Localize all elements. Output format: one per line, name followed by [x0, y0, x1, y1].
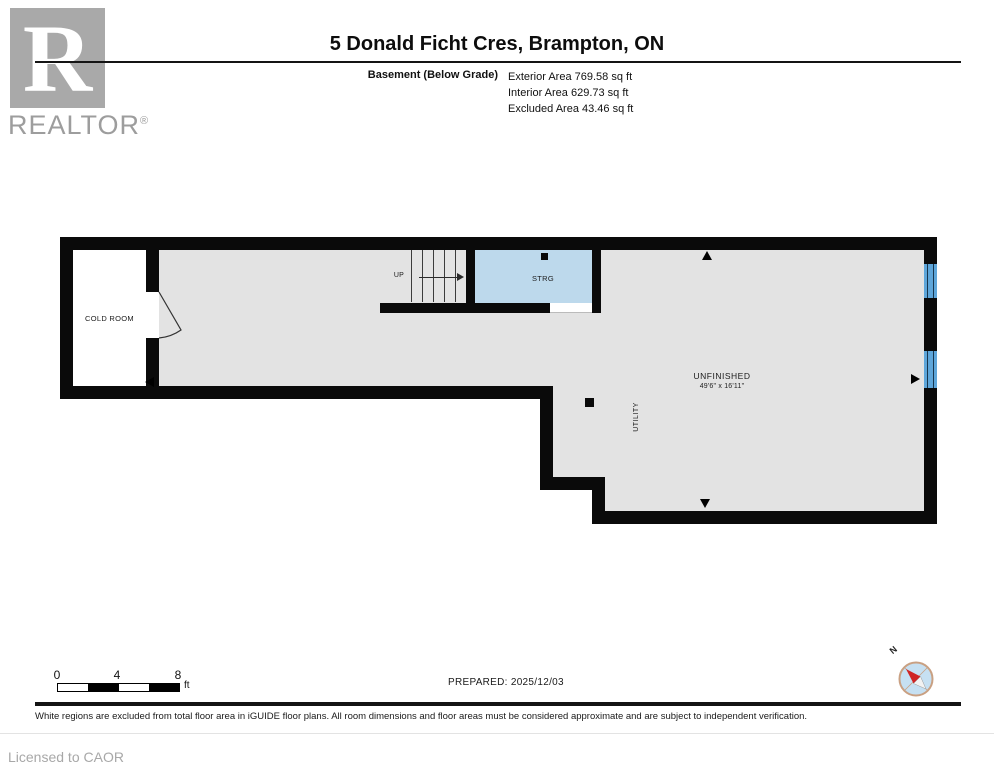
marker-arrow-up-icon — [702, 251, 712, 260]
wall-mid-vertical — [540, 386, 553, 490]
storage-door-opening — [550, 303, 592, 313]
interior-area: Interior Area 629.73 sq ft — [508, 85, 728, 101]
floor-area-lower-step — [605, 477, 924, 511]
area-summary: Exterior Area 769.58 sq ft Interior Area… — [508, 69, 728, 117]
compass-north-label: N — [888, 644, 899, 656]
realtor-logo: R — [10, 8, 105, 108]
stairs-direction-line — [419, 277, 457, 278]
wall-stairs-storage — [466, 250, 475, 313]
page-title: 5 Donald Ficht Cres, Brampton, ON — [0, 33, 994, 56]
scale-bar — [57, 683, 180, 692]
exterior-area: Exterior Area 769.58 sq ft — [508, 69, 728, 85]
post-storage — [541, 253, 548, 260]
wall-bottom — [592, 511, 937, 524]
window-lower — [924, 351, 937, 388]
scale-unit-label: ft — [184, 680, 190, 691]
floor-plan-page: R REALTOR® 5 Donald Ficht Cres, Brampton… — [0, 0, 994, 768]
window-upper — [924, 264, 937, 298]
license-text: Licensed to CAOR — [8, 749, 124, 765]
scale-segment — [149, 684, 179, 691]
marker-arrow-right-icon — [911, 374, 920, 384]
stairs-up-label: UP — [390, 272, 408, 279]
page-bottom-rule — [0, 733, 994, 734]
marker-arrow-down-icon — [700, 499, 710, 508]
floor-area-lower — [553, 386, 924, 477]
disclaimer-text: White regions are excluded from total fl… — [35, 711, 825, 722]
post-utility — [585, 398, 594, 407]
registered-mark: ® — [140, 115, 149, 127]
realtor-logo-letter: R — [10, 8, 105, 108]
unfinished-room: UNFINISHED 49'6" x 16'11" — [622, 371, 822, 390]
unfinished-dimensions: 49'6" x 16'11" — [622, 383, 822, 390]
excluded-area: Excluded Area 43.46 sq ft — [508, 101, 728, 117]
stairs-direction-arrow-icon — [457, 273, 464, 281]
wall-under-stairs — [380, 303, 550, 313]
unfinished-label: UNFINISHED — [622, 371, 822, 381]
scale-tick-8: 8 — [172, 668, 184, 682]
scale-segment — [119, 684, 149, 691]
scale-tick-4: 4 — [111, 668, 123, 682]
title-divider — [35, 61, 961, 63]
wall-left-bottom — [60, 386, 553, 399]
cold-room-door-swing — [155, 288, 191, 344]
scale-segment — [88, 684, 118, 691]
wall-coldroom-partition-upper — [146, 250, 159, 292]
storage-label: STRG — [478, 274, 608, 283]
utility-label: UTILITY — [627, 387, 647, 447]
marker-arrow-left-icon — [145, 377, 154, 387]
realtor-wordmark-text: REALTOR — [8, 110, 140, 140]
wall-left — [60, 237, 73, 399]
scale-tick-0: 0 — [51, 668, 63, 682]
prepared-date: PREPARED: 2025/12/03 — [448, 677, 564, 688]
footer-rule — [35, 702, 961, 706]
wall-top — [60, 237, 937, 250]
wall-storage-right — [592, 250, 601, 313]
cold-room-label: COLD ROOM — [85, 314, 134, 323]
scale-segment — [58, 684, 88, 691]
cold-room: COLD ROOM — [73, 250, 146, 386]
compass-icon — [897, 660, 935, 698]
floor-label: Basement (Below Grade) — [280, 69, 498, 81]
realtor-wordmark: REALTOR® — [8, 110, 178, 141]
